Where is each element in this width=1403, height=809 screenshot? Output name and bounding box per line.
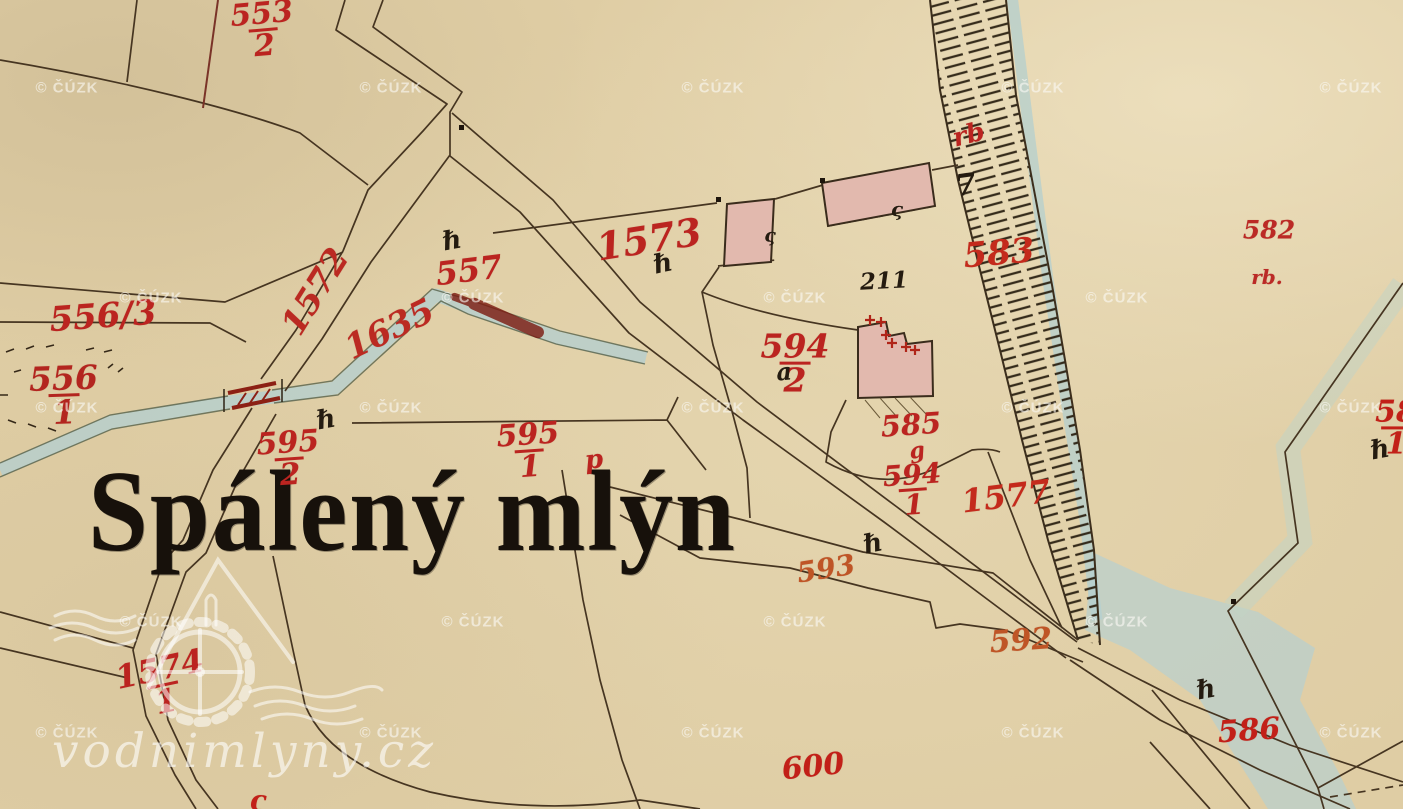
hatched-road bbox=[930, 0, 1100, 645]
stream bbox=[0, 0, 1403, 809]
map-viewport[interactable]: Spálený mlýn 5532556/3556115721635557157… bbox=[0, 0, 1403, 809]
building bbox=[724, 199, 774, 266]
map-linework bbox=[0, 0, 1403, 809]
courtyard-hatch bbox=[865, 397, 926, 418]
building bbox=[822, 163, 935, 226]
building-mill bbox=[858, 322, 933, 398]
red-weir-mark bbox=[449, 292, 545, 340]
place-name: Spálený mlýn bbox=[88, 452, 737, 574]
vodnimlyny-logo-text: vodnimlyny.cz bbox=[52, 724, 437, 779]
